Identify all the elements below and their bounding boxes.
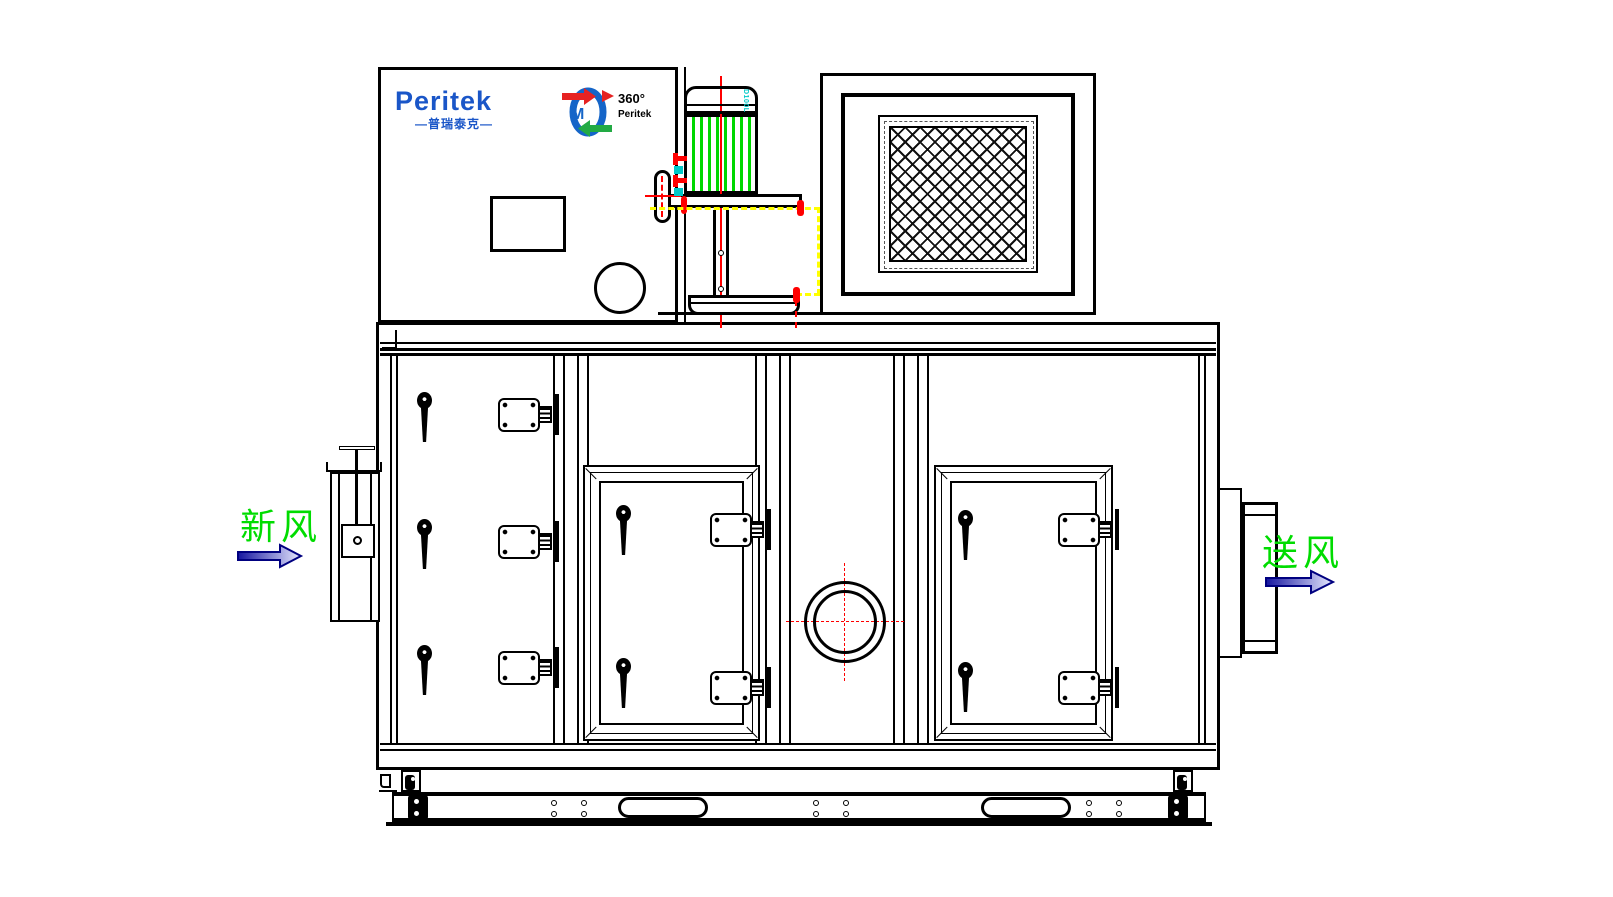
- door-latch: [710, 513, 752, 547]
- bolt-hole: [551, 811, 557, 817]
- door-latch: [1058, 513, 1100, 547]
- pedestal-bolt: [718, 250, 724, 256]
- bolt-hole: [581, 800, 587, 806]
- base-tab-bolt-dot: [1183, 777, 1187, 781]
- roof-platform-line: [658, 312, 822, 315]
- cabinet-bottom-rail-a: [380, 743, 1216, 745]
- motor-pedestal-right: [726, 210, 729, 298]
- mesh-filter: [889, 126, 1027, 262]
- valve-fitting-icon: [678, 178, 687, 183]
- damper-actuator-pin: [353, 536, 362, 545]
- door-latch: [1058, 671, 1100, 705]
- bolt-hole: [581, 811, 587, 817]
- door-handle: [417, 392, 432, 442]
- bolt-hole: [813, 800, 819, 806]
- door-handle: [958, 662, 973, 712]
- inspection-knob: [594, 262, 646, 314]
- panel-divider-line: [577, 356, 579, 744]
- bolt-hole: [1116, 811, 1122, 817]
- panel-divider-line: [893, 356, 895, 744]
- door-latch: [498, 525, 540, 559]
- valve-fitting-icon: [678, 156, 687, 161]
- door-handle: [616, 505, 631, 555]
- bracket-bolt-hole: [414, 799, 419, 804]
- forklift-slot: [981, 797, 1071, 818]
- right-wall-line: [1198, 356, 1200, 744]
- bracket-bolt-hole: [1174, 811, 1179, 816]
- bolt-hole: [843, 811, 849, 817]
- rotor-logo: M 360° Peritek: [558, 84, 662, 142]
- rotor-text-1: 360°: [618, 91, 645, 106]
- supply-air-arrow: [1264, 568, 1336, 596]
- cabinet-top-line: [380, 342, 1216, 344]
- motor-foot-line: [691, 302, 797, 304]
- bolt-hole: [813, 811, 819, 817]
- brand-logo: Peritek —普瑞泰克—: [395, 88, 513, 132]
- panel-divider-line: [563, 356, 565, 744]
- cabinet-top-rail-b: [380, 353, 1216, 356]
- outlet-duct-plate: [1218, 488, 1242, 658]
- cabinet-corner-notch: [382, 330, 397, 349]
- bolt-hole: [1086, 811, 1092, 817]
- pedestal-bolt: [718, 286, 724, 292]
- hidden-outline-top: [650, 207, 820, 210]
- forklift-slot: [618, 797, 708, 818]
- bolt-centerline: [795, 300, 797, 328]
- motor-centerline-lower: [720, 114, 722, 194]
- door-handle: [958, 510, 973, 560]
- panel-divider-line: [917, 356, 919, 744]
- base-rail: [392, 792, 1206, 822]
- door-handle: [616, 658, 631, 708]
- door-latch: [498, 398, 540, 432]
- ground-line: [386, 822, 1212, 826]
- inlet-duct-wall: [338, 474, 340, 620]
- valve-port-icon: [674, 166, 683, 174]
- right-wall-line: [1204, 356, 1206, 744]
- cabinet-bottom-rail-b: [380, 749, 1216, 751]
- cabinet-top-rail-a: [380, 348, 1216, 351]
- bolt-marker: [681, 196, 687, 214]
- bolt-hole: [1116, 800, 1122, 806]
- rotor-arrow-left2-icon: [602, 125, 612, 131]
- bracket-bolt-hole: [1174, 799, 1179, 804]
- outlet-duct-flange-line: [1245, 640, 1275, 642]
- brand-name: Peritek: [395, 88, 513, 115]
- left-wall-line: [390, 356, 392, 744]
- rotor-m-glyph: M: [571, 106, 584, 123]
- left-wall-line: [396, 356, 398, 744]
- motor-frame-label: D100L: [742, 89, 749, 113]
- bolt-hole: [843, 800, 849, 806]
- motor-pedestal-left: [713, 210, 716, 298]
- bolt-hole: [551, 800, 557, 806]
- base-step-block: [380, 774, 391, 788]
- door-latch: [710, 671, 752, 705]
- panel-divider-line: [903, 356, 905, 744]
- bolt-hole: [1086, 800, 1092, 806]
- motor-base-plate: [668, 194, 802, 208]
- valve-port-icon: [674, 188, 683, 196]
- rotor-text-2: Peritek: [618, 109, 652, 120]
- panel-divider-line: [789, 356, 791, 744]
- corner-bracket: [408, 795, 428, 820]
- corner-bracket: [1168, 795, 1188, 820]
- door-latch: [498, 651, 540, 685]
- door-handle: [417, 519, 432, 569]
- fresh-air-arrow: [236, 542, 304, 570]
- door-handle: [417, 645, 432, 695]
- damper-stem: [355, 450, 358, 526]
- brand-name-cn: —普瑞泰克—: [395, 115, 513, 132]
- outlet-duct-flange-line: [1245, 514, 1275, 516]
- bracket-bolt-hole: [414, 811, 419, 816]
- dehumidifier-elevation-drawing: Peritek —普瑞泰克— M 360° Peritek D100L: [0, 0, 1613, 897]
- base-tab-bolt-dot: [411, 777, 415, 781]
- panel-divider-line: [927, 356, 929, 744]
- display-panel: [490, 196, 566, 252]
- porthole-sightglass-inner: [813, 590, 877, 654]
- bolt-marker: [797, 200, 804, 216]
- rotor-arrow-right2-icon: [602, 90, 614, 102]
- panel-divider-line: [779, 356, 781, 744]
